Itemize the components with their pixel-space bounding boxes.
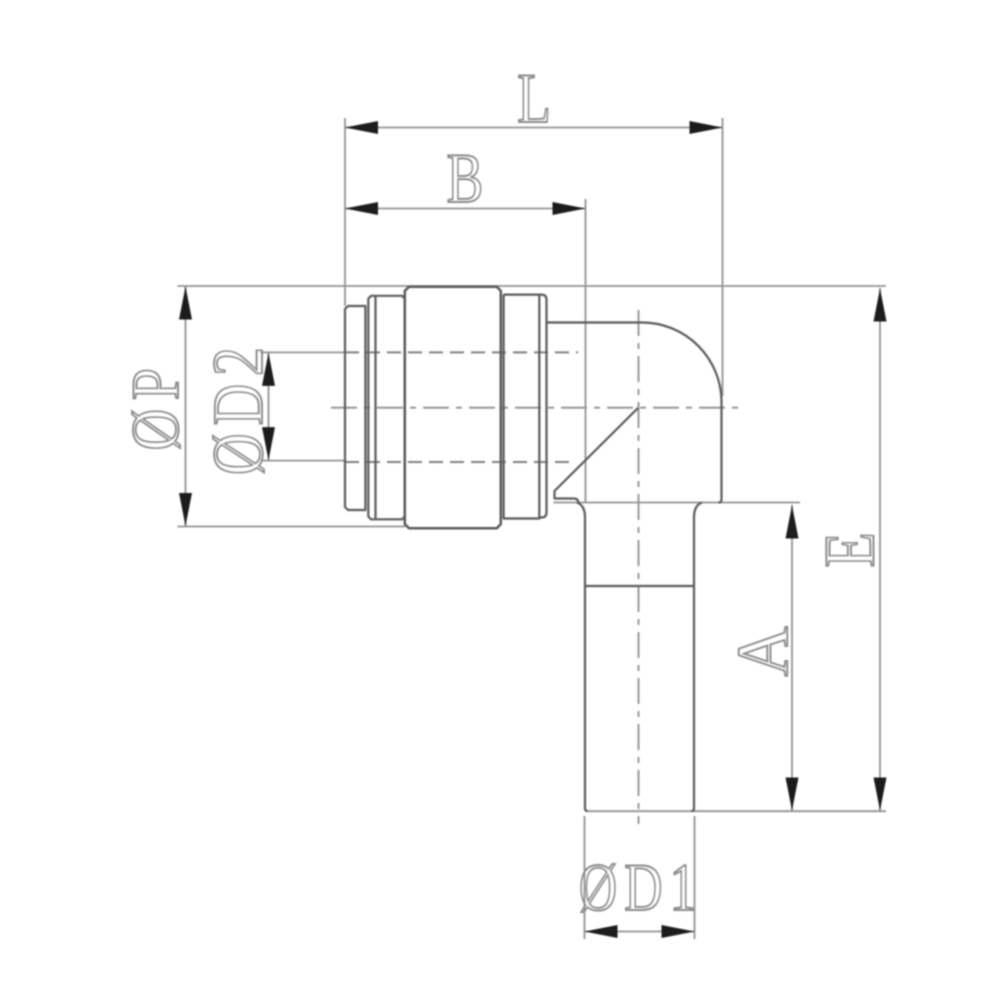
svg-text:A: A — [723, 626, 803, 676]
svg-text:ØD2: ØD2 — [199, 339, 279, 475]
svg-text:E: E — [811, 532, 891, 567]
svg-text:ØP: ØP — [118, 360, 193, 451]
svg-text:ØD1: ØD1 — [579, 851, 703, 926]
svg-text:B: B — [447, 138, 484, 217]
svg-text:L: L — [517, 58, 551, 137]
